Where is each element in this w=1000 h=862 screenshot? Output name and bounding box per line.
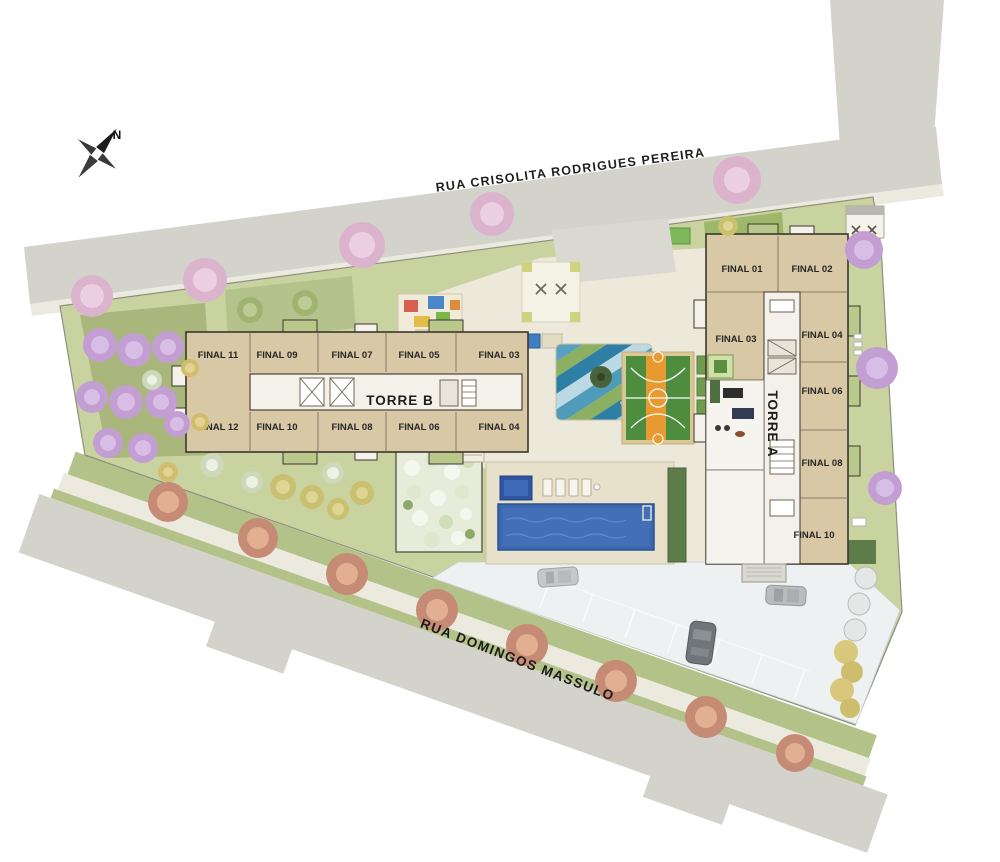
tree-green xyxy=(292,290,318,316)
site-plan: TORRE B FINAL 11 FINAL 09 FINAL 07 FINAL… xyxy=(0,0,1000,862)
tree-pink xyxy=(71,275,113,317)
round-planter xyxy=(855,567,877,589)
tree-white-green xyxy=(142,370,162,390)
tree-yellow-green xyxy=(300,485,324,509)
tree-white-green xyxy=(241,471,263,493)
flower-grove xyxy=(396,450,482,552)
torre-a-unit-final-03: FINAL 03 xyxy=(715,334,756,345)
tree-purple xyxy=(856,347,898,389)
tree-yellow-green xyxy=(350,481,374,505)
tree-purple xyxy=(152,331,184,363)
tree-green xyxy=(237,297,263,323)
torre-b-label: TORRE B xyxy=(366,393,434,408)
torre-b-unit-final-07: FINAL 07 xyxy=(331,350,372,361)
torre-a-unit-final-01: FINAL 01 xyxy=(721,264,763,275)
tree-orange xyxy=(326,553,368,595)
round-planter xyxy=(848,593,870,615)
torre-b-unit-final-03: FINAL 03 xyxy=(478,350,519,361)
torre-b-unit-final-11: FINAL 11 xyxy=(198,350,239,361)
torre-a-unit-final-04: FINAL 04 xyxy=(801,330,843,341)
tree-white-green xyxy=(322,462,344,484)
tree-white-green xyxy=(200,453,224,477)
tree-purple xyxy=(109,385,143,419)
tree-orange xyxy=(776,734,814,772)
torre-b-unit-final-04: FINAL 04 xyxy=(478,422,520,433)
torre-a-unit-final-08: FINAL 08 xyxy=(801,458,842,469)
tree-yellow-green xyxy=(270,474,296,500)
torre-b-unit-final-06: FINAL 06 xyxy=(398,422,439,433)
pool-deck xyxy=(486,462,686,564)
tree-yellow-green xyxy=(327,498,349,520)
tree-yellow xyxy=(191,413,209,431)
tree-purple xyxy=(83,328,117,362)
tree-purple xyxy=(868,471,902,505)
car xyxy=(685,620,717,665)
torre-a-building: TORRE A FINAL 01 FINAL 02 FINAL 03 FINAL… xyxy=(694,224,860,582)
tree-purple xyxy=(93,428,123,458)
tree-purple xyxy=(845,231,883,269)
torre-a-unit-final-02: FINAL 02 xyxy=(791,264,832,275)
torre-b-unit-final-08: FINAL 08 xyxy=(331,422,372,433)
site-plan-page: TORRE B FINAL 11 FINAL 09 FINAL 07 FINAL… xyxy=(0,0,1000,862)
tree-purple xyxy=(117,333,151,367)
car xyxy=(766,585,807,606)
hedge-parking xyxy=(846,540,876,564)
compass-rose-icon xyxy=(60,114,136,192)
tree-orange xyxy=(685,696,727,738)
tree-yellow xyxy=(181,359,199,377)
swimming-pool xyxy=(498,504,654,550)
torre-b-building: TORRE B FINAL 11 FINAL 09 FINAL 07 FINAL… xyxy=(172,320,528,464)
compass-north-label: N xyxy=(113,128,122,142)
torre-b-unit-final-10: FINAL 10 xyxy=(256,422,297,433)
torre-a-label: TORRE A xyxy=(765,390,780,457)
torre-b-unit-final-05: FINAL 05 xyxy=(398,350,440,361)
hedge-pool-side xyxy=(668,468,686,562)
patio-tables xyxy=(522,262,580,322)
torre-a-unit-final-06: FINAL 06 xyxy=(801,386,842,397)
tree-yellow xyxy=(158,462,178,482)
tree-pink xyxy=(339,222,385,268)
torre-b-unit-final-09: FINAL 09 xyxy=(256,350,297,361)
tree-purple xyxy=(128,433,158,463)
tree-pink xyxy=(713,156,761,204)
torre-a-unit-final-10: FINAL 10 xyxy=(793,530,834,541)
tree-purple xyxy=(164,411,190,437)
sports-court xyxy=(622,352,694,444)
tree-purple xyxy=(76,381,108,413)
tree-yellow xyxy=(718,216,738,236)
tree-orange xyxy=(148,482,188,522)
round-planter xyxy=(844,619,866,641)
tree-pink xyxy=(183,258,227,302)
tree-orange xyxy=(238,518,278,558)
car xyxy=(537,567,578,588)
tree-pink xyxy=(470,192,514,236)
